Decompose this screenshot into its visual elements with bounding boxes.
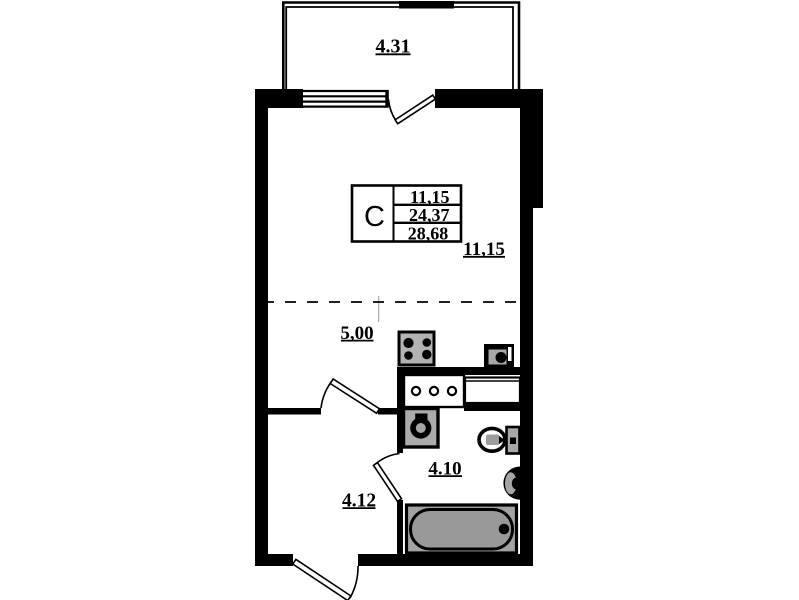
svg-text:11,15: 11,15 (410, 187, 450, 207)
svg-text:28,68: 28,68 (408, 223, 449, 243)
svg-text:C: C (364, 201, 385, 233)
svg-text:24,37: 24,37 (409, 205, 450, 225)
